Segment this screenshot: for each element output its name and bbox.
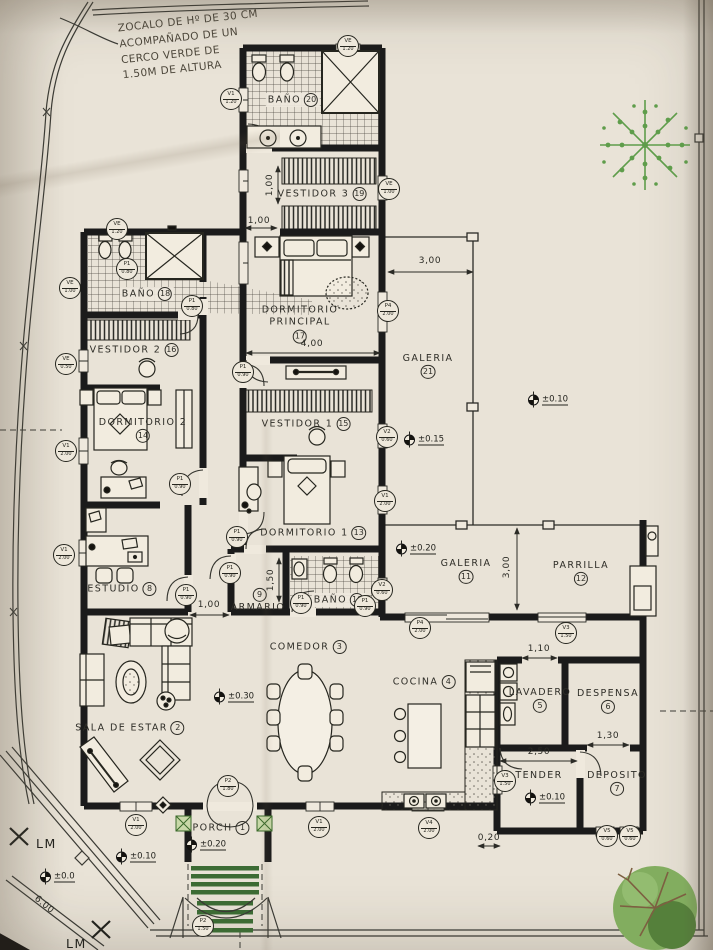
rname: TENDER	[515, 770, 562, 781]
room-label-baño: BAÑO20	[266, 93, 320, 107]
opening-tag-v3: V31.50	[555, 622, 577, 644]
tb: 1.20	[223, 99, 239, 106]
ta: VE	[107, 222, 127, 228]
rname: VESTIDOR 1	[262, 419, 334, 430]
level-benchmark-icon	[214, 692, 225, 703]
lvl-tx: ±0.10	[542, 395, 568, 406]
opening-tag-p4: P42.00	[409, 617, 431, 639]
ta: P1	[182, 299, 202, 305]
rname: COMEDOR	[270, 642, 330, 653]
tb: 1.50	[558, 633, 574, 640]
tb: 0.90	[235, 372, 251, 379]
level-marker: ±0.10	[525, 793, 565, 804]
rnum: 14	[136, 429, 150, 443]
rname: DORMITORIO 1	[260, 528, 348, 539]
ta: V2	[372, 583, 392, 589]
room-label-dormitorio-1: DORMITORIO 113	[260, 526, 366, 540]
rname: BAÑO	[314, 595, 347, 606]
rname: ESTUDIO	[87, 584, 139, 595]
rnum: 15	[336, 417, 350, 431]
opening-tag-p1: P10.90	[354, 595, 376, 617]
level-benchmark-icon	[186, 840, 197, 851]
room-label-galeria: GALERIA11	[441, 558, 492, 584]
opening-tag-v1: V11.20	[220, 88, 242, 110]
ta: V1	[375, 494, 395, 500]
ta: V3	[495, 774, 515, 780]
rname: DESPENSA	[577, 688, 639, 699]
tb: 1.00	[381, 189, 397, 196]
dimension-label: 3,00	[502, 556, 512, 578]
rname: VESTIDOR 3	[278, 189, 350, 200]
tb: 0.90	[357, 606, 373, 613]
lvl-tx: ±0.20	[200, 840, 226, 851]
opening-tag-ve: VE1.20	[106, 218, 128, 240]
lvl-tx: ±0.30	[228, 692, 254, 703]
tb: 1.50	[195, 926, 211, 933]
rnum: 7	[610, 782, 624, 796]
tb: 2.00	[421, 828, 437, 835]
rnum: 5	[533, 699, 547, 713]
level-benchmark-icon	[116, 852, 127, 863]
ta: V5	[620, 829, 640, 835]
ta: P1	[170, 477, 190, 483]
ta: P1	[233, 365, 253, 371]
rnum: 12	[574, 572, 588, 586]
rnum: 1	[236, 821, 250, 835]
rnum: 9	[252, 588, 266, 602]
rnum: 6	[601, 700, 615, 714]
opening-tag-v1: V12.00	[125, 814, 147, 836]
tb: 0.90	[172, 484, 188, 491]
room-label-armario: 9ARMARIO	[231, 588, 285, 614]
level-marker: ±0.10	[116, 852, 156, 863]
tb: 0.80	[184, 306, 200, 313]
ta: V5	[597, 829, 617, 835]
rnum: 20	[304, 93, 318, 107]
level-marker: ±0.0	[40, 872, 75, 883]
dimension-label: 6.00	[32, 894, 56, 916]
opening-tag-v4: V42.00	[418, 817, 440, 839]
rnum: 19	[352, 187, 366, 201]
room-label-estudio: ESTUDIO8	[87, 582, 156, 596]
tb: 2.00	[56, 555, 72, 562]
tb: 2.00	[412, 628, 428, 635]
room-label-deposito: DEPOSITO7	[587, 770, 647, 796]
rnum: 3	[332, 640, 346, 654]
room-label-lavadero: LAVADERO5	[509, 687, 571, 713]
room-label-dormitorio-2: DORMITORIO 214	[99, 417, 187, 443]
tb: 0.80	[119, 269, 135, 276]
dimension-label: 1,00	[265, 174, 275, 196]
rname: COCINA	[393, 677, 439, 688]
rname: VESTIDOR 2	[90, 345, 162, 356]
tb: 1.00	[62, 288, 78, 295]
opening-tag-v1: V12.00	[374, 490, 396, 512]
tb: 1.50	[497, 781, 513, 788]
ta: P1	[117, 262, 137, 268]
tb: 2.00	[128, 825, 144, 832]
opening-tag-ve: VE1.20	[337, 35, 359, 57]
dimension-label: 4,00	[301, 339, 323, 349]
ta: P2	[193, 919, 213, 925]
opening-tag-v2: V20.60	[376, 426, 398, 448]
ta: VE	[56, 357, 76, 363]
lvl-tx: ±0.10	[539, 793, 565, 804]
ta: P4	[410, 621, 430, 627]
ta: V1	[56, 444, 76, 450]
tb: 2.00	[377, 501, 393, 508]
ta: V3	[556, 626, 576, 632]
level-benchmark-icon	[528, 395, 539, 406]
dimension-label: 1,30	[597, 731, 619, 741]
room-label-parrilla: PARRILLA12	[553, 560, 609, 586]
rnum: 11	[459, 570, 473, 584]
rnum: 16	[164, 343, 178, 357]
ta: P1	[355, 599, 375, 605]
level-benchmark-icon	[40, 872, 51, 883]
rname: LAVADERO	[509, 687, 571, 698]
dimension-label: 1,10	[528, 644, 550, 654]
tb: 0.60	[622, 836, 638, 843]
rname: DORMITORIO	[262, 305, 339, 316]
opening-tag-v5: V50.60	[619, 825, 641, 847]
ta: V1	[309, 820, 329, 826]
room-label-tender: TENDER	[515, 770, 562, 782]
room-label-vestidor-3: VESTIDOR 319	[278, 187, 367, 201]
dimension-label: 1,00	[198, 600, 220, 610]
ta: V1	[221, 92, 241, 98]
tb: 0.60	[374, 590, 390, 597]
level-benchmark-icon	[396, 544, 407, 555]
ta: P1	[220, 566, 240, 572]
ta: V2	[377, 430, 397, 436]
lvl-tx: ±0.0	[54, 872, 75, 883]
tb: 2.00	[311, 827, 327, 834]
level-benchmark-icon	[404, 435, 415, 446]
room-label-baño: BAÑO18	[120, 287, 174, 301]
dimension-label: 2,50	[528, 747, 550, 757]
lvl-tx: ±0.20	[410, 544, 436, 555]
lvl-tx: ±0.15	[418, 435, 444, 446]
opening-tag-p1: P10.90	[175, 584, 197, 606]
ta: P1	[227, 530, 247, 536]
opening-tag-v1: V12.00	[308, 816, 330, 838]
rname: ARMARIO	[231, 602, 285, 613]
ta: P1	[291, 596, 311, 602]
rname: BAÑO	[268, 95, 301, 106]
tb: 2.00	[380, 311, 396, 318]
level-benchmark-icon	[525, 793, 536, 804]
lm-boundary-label: LM	[66, 936, 87, 950]
tb: 1.20	[340, 46, 356, 53]
opening-tag-p2: P21.80	[217, 775, 239, 797]
rnum: 8	[143, 582, 157, 596]
room-label-sala-de-estar: SALA DE ESTAR2	[75, 721, 184, 735]
tb: 0.90	[222, 573, 238, 580]
opening-tag-ve: VE1.00	[378, 178, 400, 200]
opening-tag-v1: V12.00	[55, 440, 77, 462]
ta: V4	[419, 821, 439, 827]
opening-tag-v5: V50.60	[596, 825, 618, 847]
rname: GALERIA	[441, 558, 492, 569]
tb: 0.90	[229, 537, 245, 544]
room-label-cocina: COCINA4	[393, 675, 456, 689]
opening-tag-p1: P10.80	[116, 258, 138, 280]
rname: DEPOSITO	[587, 770, 647, 781]
tb: 0.90	[293, 603, 309, 610]
rname: PARRILLA	[553, 560, 609, 571]
dimension-label: 0,20	[478, 833, 500, 843]
tb: 0.90	[178, 595, 194, 602]
level-marker: ±0.20	[396, 544, 436, 555]
level-marker: ±0.30	[214, 692, 254, 703]
room-label-vestidor-1: VESTIDOR 115	[262, 417, 351, 431]
lm-boundary-label: LM	[36, 836, 57, 851]
level-marker: ±0.20	[186, 840, 226, 851]
level-marker: ±0.10	[528, 395, 568, 406]
rnum: 21	[421, 365, 435, 379]
room-label-comedor: COMEDOR3	[270, 640, 347, 654]
opening-tag-p1: P10.90	[232, 361, 254, 383]
room-label-vestidor-2: VESTIDOR 216	[90, 343, 179, 357]
ta: P1	[176, 588, 196, 594]
opening-tag-ve: VE1.00	[59, 277, 81, 299]
opening-tag-v1: V12.00	[53, 544, 75, 566]
ta: V1	[126, 818, 146, 824]
opening-tag-p1: P10.80	[181, 295, 203, 317]
opening-tag-p2: P21.50	[192, 915, 214, 937]
dimension-label: 1,00	[248, 216, 270, 226]
opening-tag-p1: P10.90	[290, 592, 312, 614]
rnum: 4	[441, 675, 455, 689]
room-label-galeria: GALERIA21	[403, 353, 454, 379]
opening-tag-p1: P10.90	[219, 562, 241, 584]
ta: P4	[378, 304, 398, 310]
dimension-label: 1,50	[266, 569, 276, 591]
opening-tag-p1: P10.90	[226, 526, 248, 548]
rnum: 18	[158, 287, 172, 301]
opening-tag-ve: VE0.50	[55, 353, 77, 375]
opening-tag-p1: P10.90	[169, 473, 191, 495]
lvl-tx: ±0.10	[130, 852, 156, 863]
tb: 0.60	[379, 437, 395, 444]
tb: 0.50	[58, 364, 74, 371]
rnum: 2	[171, 721, 185, 735]
tb: 0.60	[599, 836, 615, 843]
rname: SALA DE ESTAR	[75, 723, 167, 734]
tb: 1.20	[109, 229, 125, 236]
level-marker: ±0.15	[404, 435, 444, 446]
floor-plan-photo: BAÑO20VESTIDOR 319DORMITORIOPRINCIPAL17G…	[0, 0, 713, 950]
dimension-label: 3,00	[419, 256, 441, 266]
ta: VE	[379, 182, 399, 188]
opening-tag-v3: V31.50	[494, 770, 516, 792]
opening-tag-v2: V20.60	[371, 579, 393, 601]
labels-layer: BAÑO20VESTIDOR 319DORMITORIOPRINCIPAL17G…	[0, 0, 713, 950]
rname: PORCH	[192, 823, 232, 834]
room-label-porch: PORCH1	[192, 821, 249, 835]
rname: BAÑO	[122, 289, 155, 300]
opening-tag-p4: P42.00	[377, 300, 399, 322]
rname: GALERIA	[403, 353, 454, 364]
ta: VE	[338, 39, 358, 45]
ta: VE	[60, 281, 80, 287]
room-label-dormitorio: DORMITORIOPRINCIPAL17	[262, 305, 339, 344]
rnum: 13	[352, 526, 366, 540]
tb: 2.00	[58, 451, 74, 458]
ta: V1	[54, 548, 74, 554]
rname: DORMITORIO 2	[99, 417, 187, 428]
ta: P2	[218, 779, 238, 785]
tb: 1.80	[220, 786, 236, 793]
rname: PRINCIPAL	[269, 317, 330, 328]
room-label-despensa: DESPENSA6	[577, 688, 639, 714]
